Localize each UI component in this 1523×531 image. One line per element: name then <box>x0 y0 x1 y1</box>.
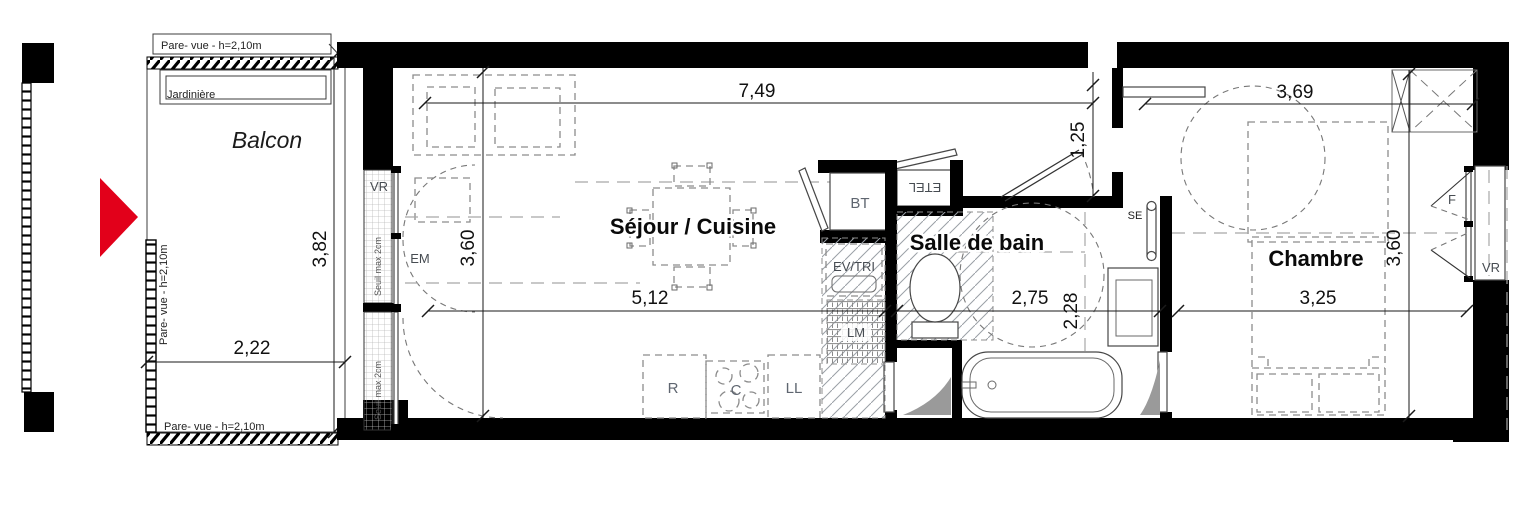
ev-tri-label: EV/TRI <box>833 259 875 274</box>
bathroom: Salle de bain SE <box>897 202 1167 419</box>
lm-label: LM <box>847 325 865 340</box>
bathtub <box>962 352 1122 418</box>
room-label-sejour: Séjour / Cuisine <box>610 214 776 239</box>
towel-radiator: SE <box>1128 202 1156 261</box>
kitchen-counter: EV/TRI LM <box>822 238 885 418</box>
dim-sejour-w: 5,12 <box>632 288 669 309</box>
dimension-balcony: 3,82 2,22 <box>141 51 351 438</box>
washer-column-label: LL <box>786 380 803 397</box>
vr-right-label: VR <box>1482 260 1500 275</box>
dim-sejour-top: 7,49 <box>739 81 776 102</box>
dim-balcon-w: 2,22 <box>234 338 271 359</box>
shaft-door-shadow <box>903 377 951 415</box>
dim-balcon-h: 3,82 <box>310 231 331 268</box>
dim-chambre-h: 3,60 <box>1384 230 1405 267</box>
toilet-cistern <box>912 322 958 338</box>
floor-plan-drawing: Pare- vue - h=2,10m Jardinière Balcon Pa… <box>0 0 1523 531</box>
cooktop-label: C <box>731 382 742 399</box>
jardiniere-label: Jardinière <box>167 89 215 101</box>
fridge-label: R <box>668 380 679 397</box>
washbasin <box>1108 268 1158 346</box>
se-label: SE <box>1128 210 1143 222</box>
room-label-chambre: Chambre <box>1268 246 1363 271</box>
entrance-arrow-icon <box>100 178 138 257</box>
pare-vue-left-label: Pare- vue - h=2,10m <box>158 244 170 345</box>
toilet-bowl <box>910 254 960 322</box>
room-label-bain: Salle de bain <box>910 230 1045 255</box>
seuil-lower-label: Seuil max 2cm <box>373 361 383 420</box>
dim-entry: 1,25 <box>1068 122 1089 159</box>
bath-door-shadow <box>1140 360 1160 415</box>
neighbour-balcony-separator <box>22 43 54 432</box>
em-door-label: EM <box>410 251 430 266</box>
turning-circle-bedroom <box>1181 86 1325 230</box>
pare-vue-bottom-label: Pare- vue - h=2,10m <box>164 421 265 433</box>
dim-bain-w: 2,75 <box>1012 288 1049 309</box>
vr-left-label: VR <box>370 179 388 194</box>
floor-plan-page: Pare- vue - h=2,10m Jardinière Balcon Pa… <box>0 0 1523 531</box>
pare-vue-top-label: Pare- vue - h=2,10m <box>161 40 262 52</box>
bedroom: Chambre F VR <box>1172 70 1507 430</box>
seuil-upper-label: Seuil max 2cm <box>373 237 383 296</box>
balcony-window-wall: VR Seuil max 2cm Seuil max 2cm EM <box>363 160 503 431</box>
bt-label: BT <box>850 195 869 212</box>
window-f-label: F <box>1448 192 1456 207</box>
dim-chambre-w: 3,25 <box>1300 288 1337 309</box>
etel-label: ETEL <box>909 180 942 195</box>
dim-sejour-h: 3,60 <box>458 230 479 267</box>
dim-chambre-top: 3,69 <box>1277 82 1314 103</box>
dim-bain-h: 2,28 <box>1061 293 1082 330</box>
room-label-balcon: Balcon <box>232 127 302 153</box>
entry-door-panel <box>1123 87 1205 97</box>
wardrobe <box>1248 122 1388 242</box>
